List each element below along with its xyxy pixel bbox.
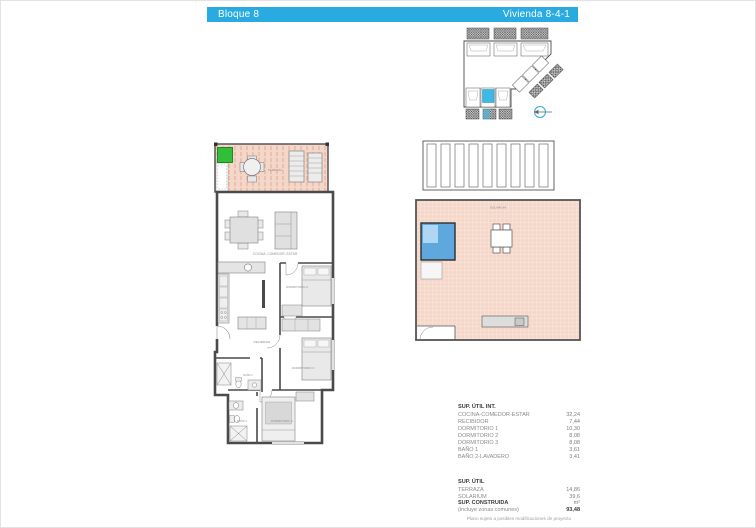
living-label: COCINA, COMEDOR, ESTAR <box>253 252 298 256</box>
plan-sheet: Bloque 8 Vivienda 8-4-1 <box>0 0 756 528</box>
table-row: DORMITORIO 3 8,08 <box>458 440 580 447</box>
table-row: BAÑO 2-LAVADERO 3,41 <box>458 454 580 461</box>
table-row: COCINA-COMEDOR-ESTAR 32,24 <box>458 412 580 419</box>
pergola <box>423 141 554 190</box>
unit-label: Vivienda 8-4-1 <box>503 7 570 22</box>
solarium-deck: SOLARIUM <box>416 200 580 340</box>
basin-icon <box>252 383 256 387</box>
terrace-label: TERRAZA <box>268 168 283 172</box>
built-area-table: SUP. CONSTRUIDA m² (incluye zonas comune… <box>458 500 580 514</box>
table-row: SUP. CONSTRUIDA m² <box>458 500 580 507</box>
block-label: Bloque 8 <box>218 7 259 22</box>
table-title: SUP. ÚTIL INT. <box>458 404 580 410</box>
solarium-plan: SOLARIUM <box>408 138 588 345</box>
bedroom2-label: DORMITORIO 2 <box>286 285 308 289</box>
sofa-icon <box>275 212 297 249</box>
table-row: BAÑO 1 3,61 <box>458 447 580 454</box>
bedroom1-label: DORMITORIO 1 <box>271 419 293 423</box>
title-bar: Bloque 8 Vivienda 8-4-1 <box>207 7 578 22</box>
terrace-area: TERRAZA <box>214 143 329 193</box>
bedroom3-label: DORMITORIO 3 <box>292 366 314 370</box>
table-row: TERRAZA 14,86 <box>458 487 580 494</box>
hall-label: RECIBIDOR <box>254 340 272 344</box>
stair-landing <box>417 326 455 340</box>
interior-areas-table: SUP. ÚTIL INT. COCINA-COMEDOR-ESTAR 32,2… <box>458 404 580 461</box>
table-row: (incluye zonas comunes) 93,48 <box>458 507 580 514</box>
solarium-bench <box>482 316 528 327</box>
site-key-plan <box>433 25 593 135</box>
table-title: SUP. ÚTIL <box>458 479 580 485</box>
table-row: DORMITORIO 2 8,08 <box>458 433 580 440</box>
bottom-roof-pads <box>466 109 512 119</box>
sink-icon <box>244 264 251 271</box>
solarium-label: SOLARIUM <box>490 206 507 210</box>
plunge-pool-icon <box>421 223 455 260</box>
bathroom2-label: BAÑO 2 <box>243 374 253 377</box>
apartment-floor-plan: TERRAZA <box>190 130 370 520</box>
north-arrow-icon <box>534 107 552 118</box>
highlighted-unit <box>483 90 495 103</box>
table-row: DORMITORIO 1 10,30 <box>458 426 580 433</box>
table-row: RECIBIDOR 7,44 <box>458 419 580 426</box>
disclaimer-note: Plano sujeto a posibles modificaciones d… <box>452 516 586 521</box>
unit-position-marker <box>218 148 233 163</box>
top-units <box>467 43 548 56</box>
basin-icon <box>233 403 239 409</box>
toilet-icon <box>236 381 241 388</box>
exterior-areas-table: SUP. ÚTIL TERRAZA 14,86 SOLARIUM 39,6 <box>458 479 580 501</box>
roof-terrace-pads <box>467 28 548 39</box>
